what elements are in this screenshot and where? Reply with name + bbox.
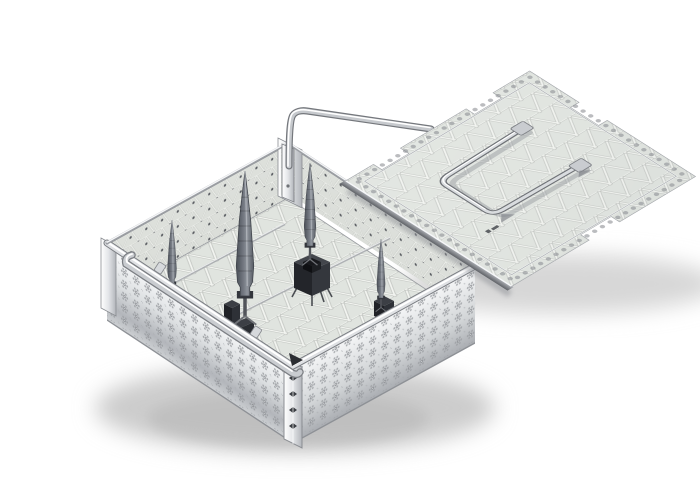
product-photo: Product photo of a stainless steel perfo… <box>40 16 700 481</box>
scene-canvas: Product photo of a stainless steel perfo… <box>40 16 700 481</box>
